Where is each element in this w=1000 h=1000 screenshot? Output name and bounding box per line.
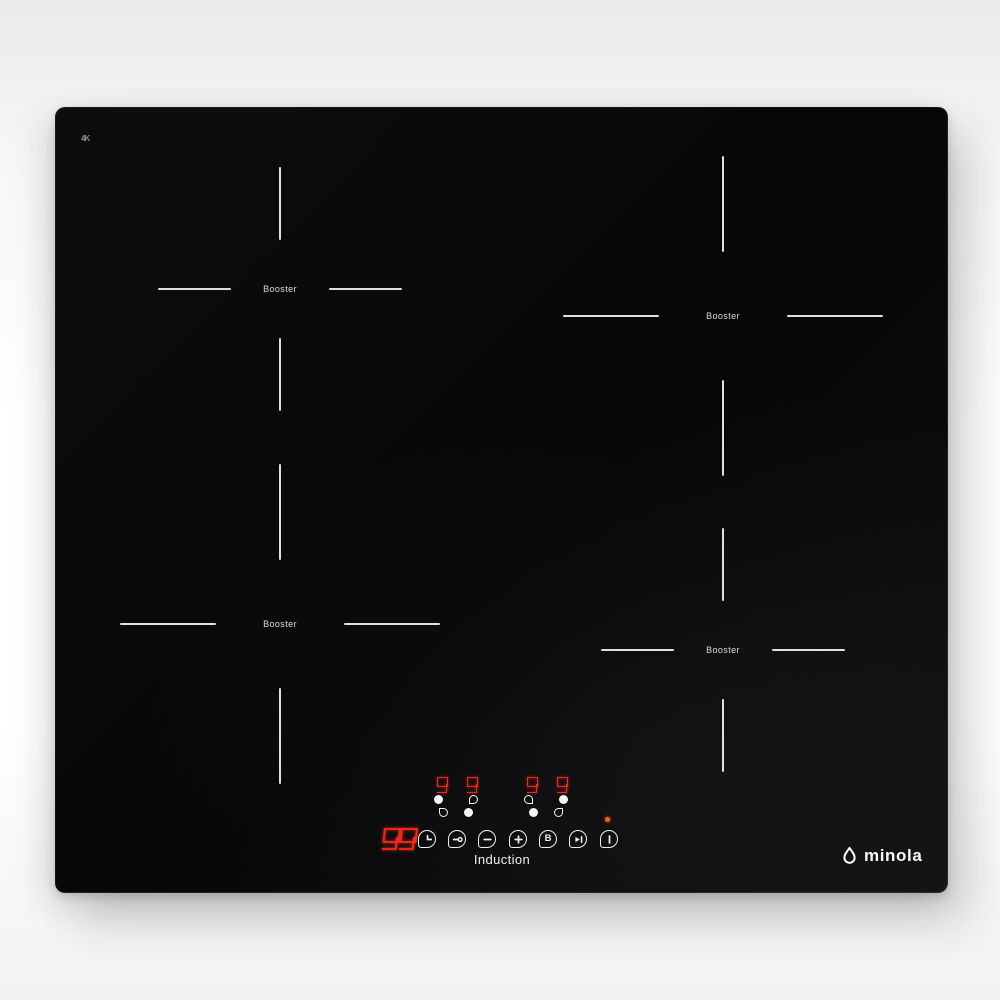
booster-label: Booster xyxy=(706,645,740,655)
zone-cross-line xyxy=(601,649,674,651)
zone-dot-icon xyxy=(469,795,478,804)
child-lock-button[interactable] xyxy=(448,830,466,848)
zone-select-front-left[interactable] xyxy=(464,795,478,817)
zone1-power-display xyxy=(437,777,446,792)
zone-cross-line xyxy=(722,380,724,476)
minus-icon xyxy=(482,834,493,845)
zone-select-back-right[interactable] xyxy=(554,795,568,817)
zone-dot-icon xyxy=(434,795,443,804)
zone-cross-line xyxy=(279,338,281,411)
zone-cross-line xyxy=(563,315,659,317)
power-bar-icon xyxy=(604,834,615,845)
zone-cross-line xyxy=(120,623,216,625)
zone-cross-line xyxy=(344,623,440,625)
booster-label: Booster xyxy=(263,619,297,629)
zone-dot-icon xyxy=(559,795,568,804)
zone-cross-line xyxy=(279,167,281,240)
plus-icon xyxy=(513,834,524,845)
zone-select-back-left[interactable] xyxy=(434,795,448,817)
induction-label: Induction xyxy=(474,852,530,867)
power-indicator-light xyxy=(605,817,610,822)
zone-dot-icon xyxy=(554,808,563,817)
zone-cross-line xyxy=(787,315,883,317)
timer-button[interactable] xyxy=(418,830,436,848)
booster-b-label: B xyxy=(545,834,552,844)
key-icon xyxy=(452,834,463,845)
zone-cross-line xyxy=(279,688,281,784)
zone-cross-line xyxy=(329,288,402,290)
zone-dot-icon xyxy=(464,808,473,817)
zone-dot-icon xyxy=(529,808,538,817)
brand-wordmark: minola xyxy=(864,846,922,866)
zone-select-front-right[interactable] xyxy=(524,795,538,817)
zone-cross-line xyxy=(722,156,724,252)
zone-cross-line xyxy=(158,288,231,290)
stop-and-go-button[interactable] xyxy=(569,830,587,848)
booster-button[interactable]: B xyxy=(539,830,557,848)
clock-icon xyxy=(422,834,433,845)
play-pause-icon xyxy=(573,834,584,845)
zone-cross-line xyxy=(722,528,724,601)
zone-dot-icon xyxy=(524,795,533,804)
power-up-button[interactable] xyxy=(509,830,527,848)
zone-cross-line xyxy=(722,699,724,772)
power-button[interactable] xyxy=(600,830,618,848)
timer-display-digit xyxy=(382,828,397,848)
drop-logo-icon xyxy=(841,845,858,867)
zone-dot-icon xyxy=(439,808,448,817)
booster-label: Booster xyxy=(263,284,297,294)
product-photo: 4K Booster Booster Booster xyxy=(0,0,1000,1000)
zone3-power-display xyxy=(527,777,536,792)
timer-display-digit xyxy=(399,828,414,848)
brand-logo: minola xyxy=(841,845,922,867)
power-down-button[interactable] xyxy=(478,830,496,848)
zone-cross-line xyxy=(279,464,281,560)
zone-cross-line xyxy=(772,649,845,651)
etched-corner-mark: 4K xyxy=(81,134,89,143)
zone4-power-display xyxy=(557,777,566,792)
booster-label: Booster xyxy=(706,311,740,321)
zone2-power-display xyxy=(467,777,476,792)
induction-cooktop-glass: 4K Booster Booster Booster xyxy=(55,107,948,893)
